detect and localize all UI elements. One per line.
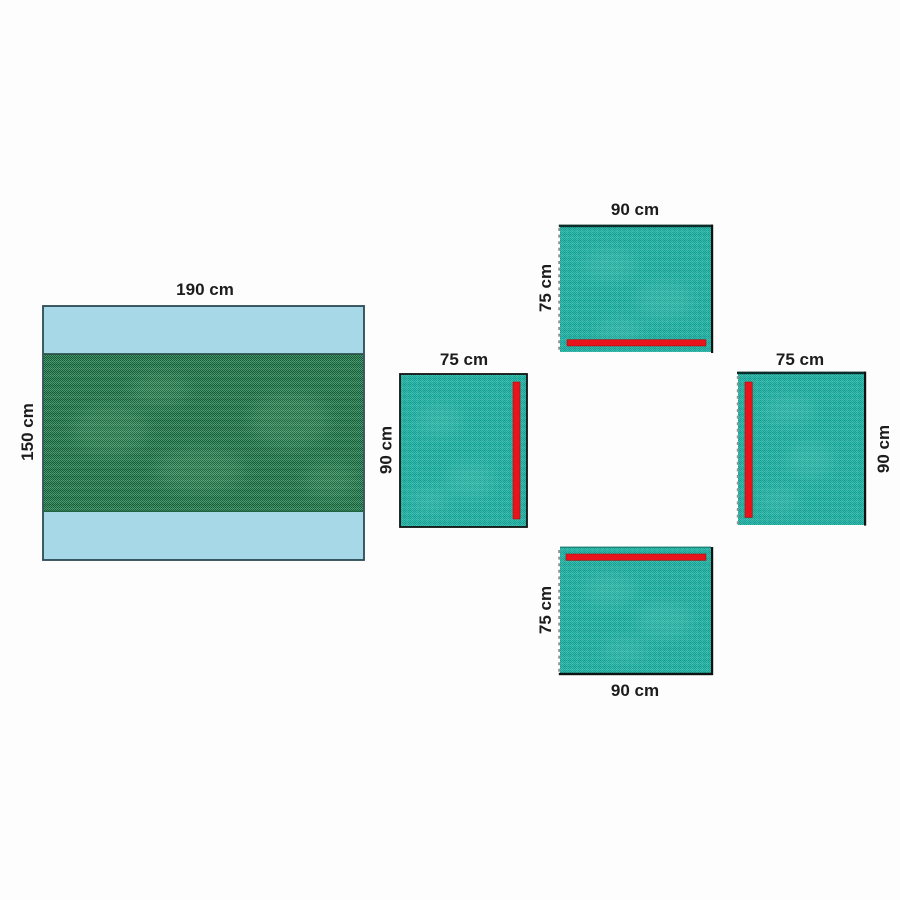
svg-text:75 cm: 75 cm <box>776 350 824 369</box>
svg-text:90 cm: 90 cm <box>611 681 659 700</box>
svg-text:190 cm: 190 cm <box>176 280 234 299</box>
svg-text:90 cm: 90 cm <box>611 200 659 219</box>
svg-text:90 cm: 90 cm <box>874 425 893 473</box>
svg-text:90 cm: 90 cm <box>377 426 396 474</box>
svg-text:75 cm: 75 cm <box>536 264 555 312</box>
svg-text:150 cm: 150 cm <box>18 403 37 461</box>
svg-text:75 cm: 75 cm <box>440 350 488 369</box>
svg-text:75 cm: 75 cm <box>536 586 555 634</box>
